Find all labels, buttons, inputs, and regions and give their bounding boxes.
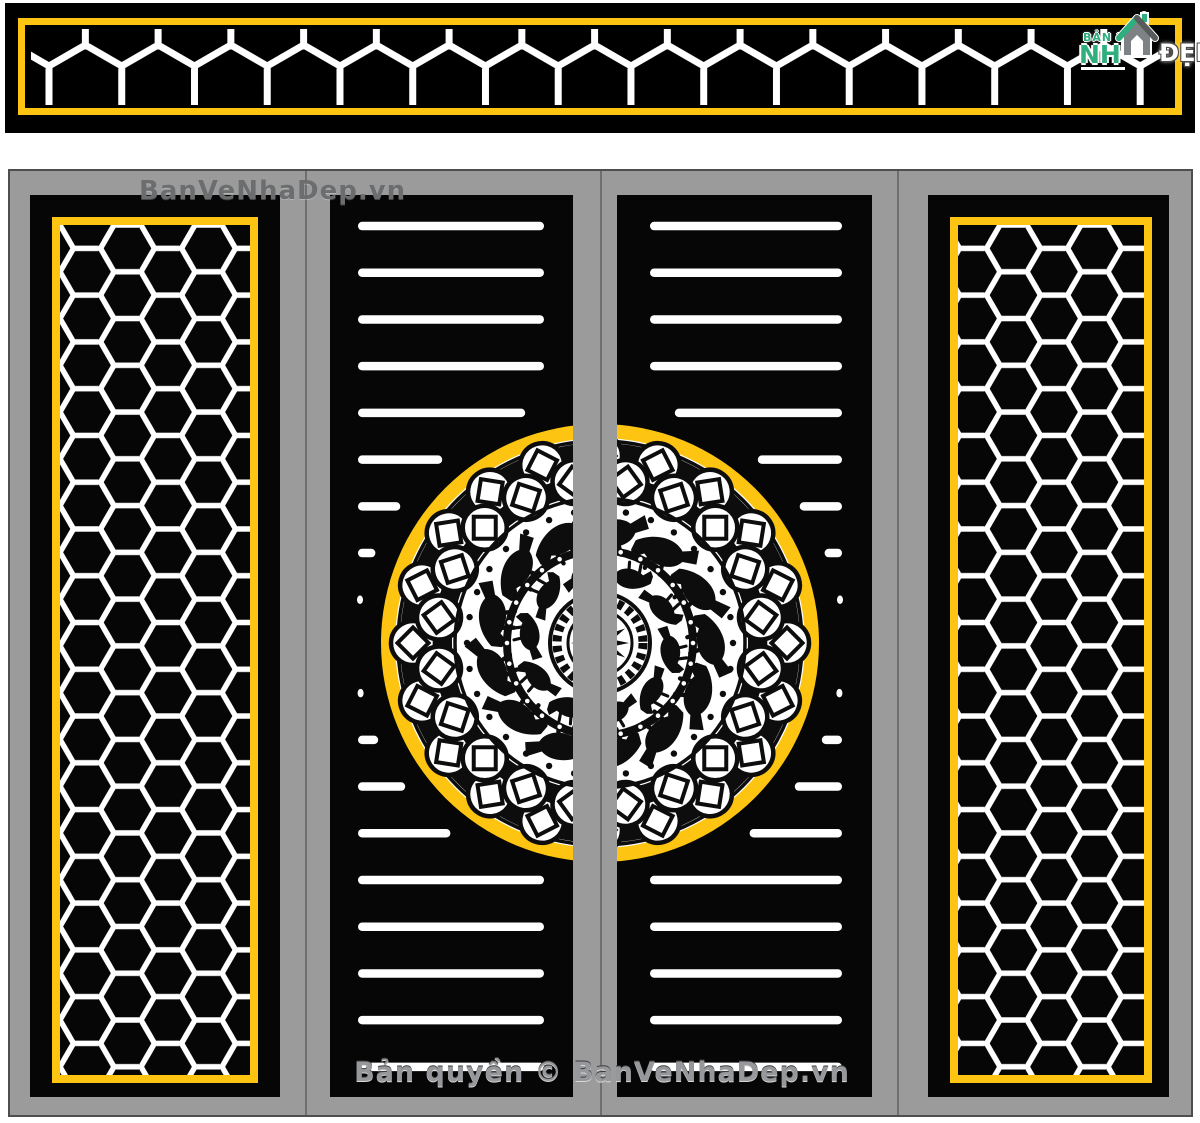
watermark: BanVeNhaDep.vn	[139, 176, 406, 206]
left-panel-cube-pattern	[60, 225, 250, 1075]
seam-line-center	[600, 171, 602, 1115]
copyright-text: Bản quyền © BanVeNhaDep.vn	[352, 1057, 852, 1088]
site-logo: BẢN VẼ NH ĐẸP	[1073, 7, 1198, 69]
seam-line-left	[305, 171, 307, 1115]
logo-dep-label: ĐẸP	[1159, 39, 1200, 67]
banner-cube-pattern	[31, 29, 1169, 105]
design-preview: BẢN VẼ NH ĐẸP	[0, 0, 1200, 1123]
right-panel-cube-pattern	[958, 225, 1144, 1075]
logo-underline	[1081, 67, 1125, 70]
seam-line-right	[897, 171, 899, 1115]
house-icon	[1115, 9, 1161, 67]
left-fixed-panel	[30, 195, 280, 1097]
right-fixed-panel	[928, 195, 1169, 1097]
gate-frame: BanVeNhaDep.vn Bản quyền © BanVeNhaDep.v…	[8, 169, 1193, 1117]
top-banner: BẢN VẼ NH ĐẸP	[5, 3, 1195, 133]
center-divider	[573, 195, 617, 1097]
